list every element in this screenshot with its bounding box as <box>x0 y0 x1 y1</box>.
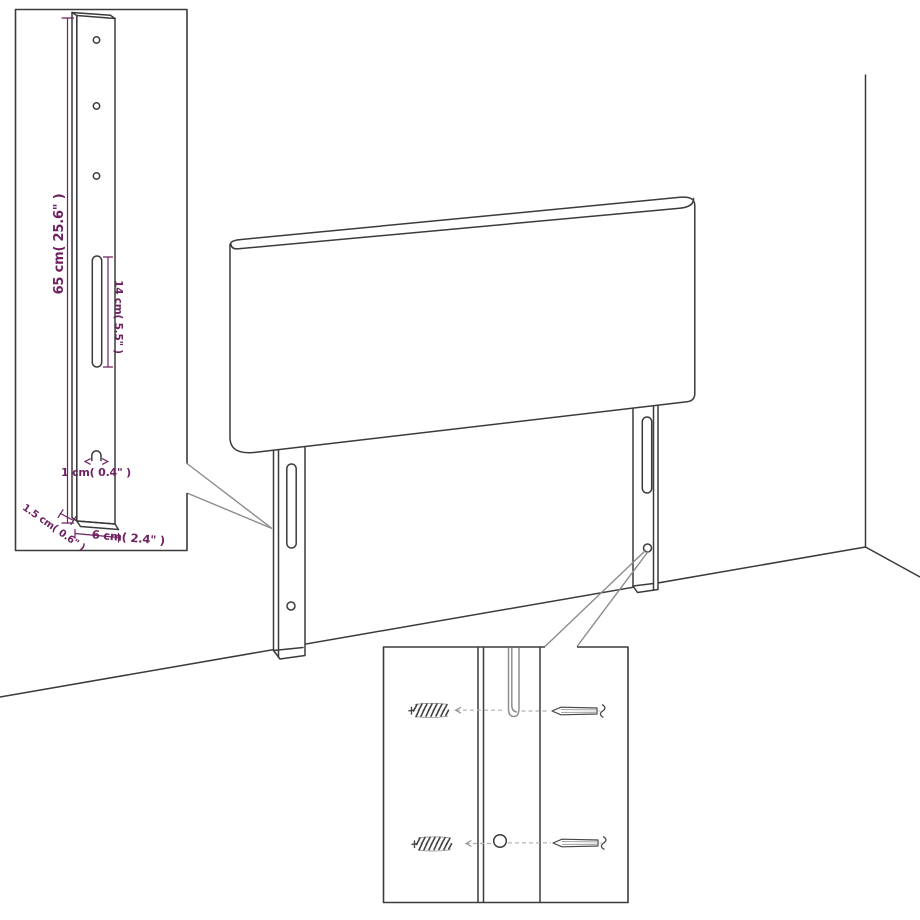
callout-lines <box>187 464 649 647</box>
right-leg <box>633 389 658 593</box>
headboard-panel <box>230 197 695 453</box>
dim-hole-label: 1 cm( 0.4" ) <box>61 466 131 479</box>
callout-line-bracket-upper <box>187 464 272 529</box>
inset-mounting-detail <box>384 647 629 903</box>
assembly-diagram: 65 cm( 25.6" ) 14 cm( 5.5" ) 1 cm( 0.4" … <box>0 0 920 920</box>
dim-slot-label: 14 cm( 5.5" ) <box>112 280 124 354</box>
floor-line-right <box>866 547 920 577</box>
headboard-panel-outline <box>230 197 695 453</box>
inset-mounting-box-border <box>384 647 629 903</box>
diagram-canvas: 65 cm( 25.6" ) 14 cm( 5.5" ) 1 cm( 0.4" … <box>0 0 920 920</box>
callout-line-mounting-right <box>577 551 649 647</box>
dim-height-label: 65 cm( 25.6" ) <box>52 194 67 295</box>
callout-line-mounting-left <box>545 550 646 647</box>
inset-bracket-detail: 65 cm( 25.6" ) 14 cm( 5.5" ) 1 cm( 0.4" … <box>16 10 188 554</box>
callout-line-bracket-lower <box>187 493 272 529</box>
left-leg <box>274 434 306 659</box>
